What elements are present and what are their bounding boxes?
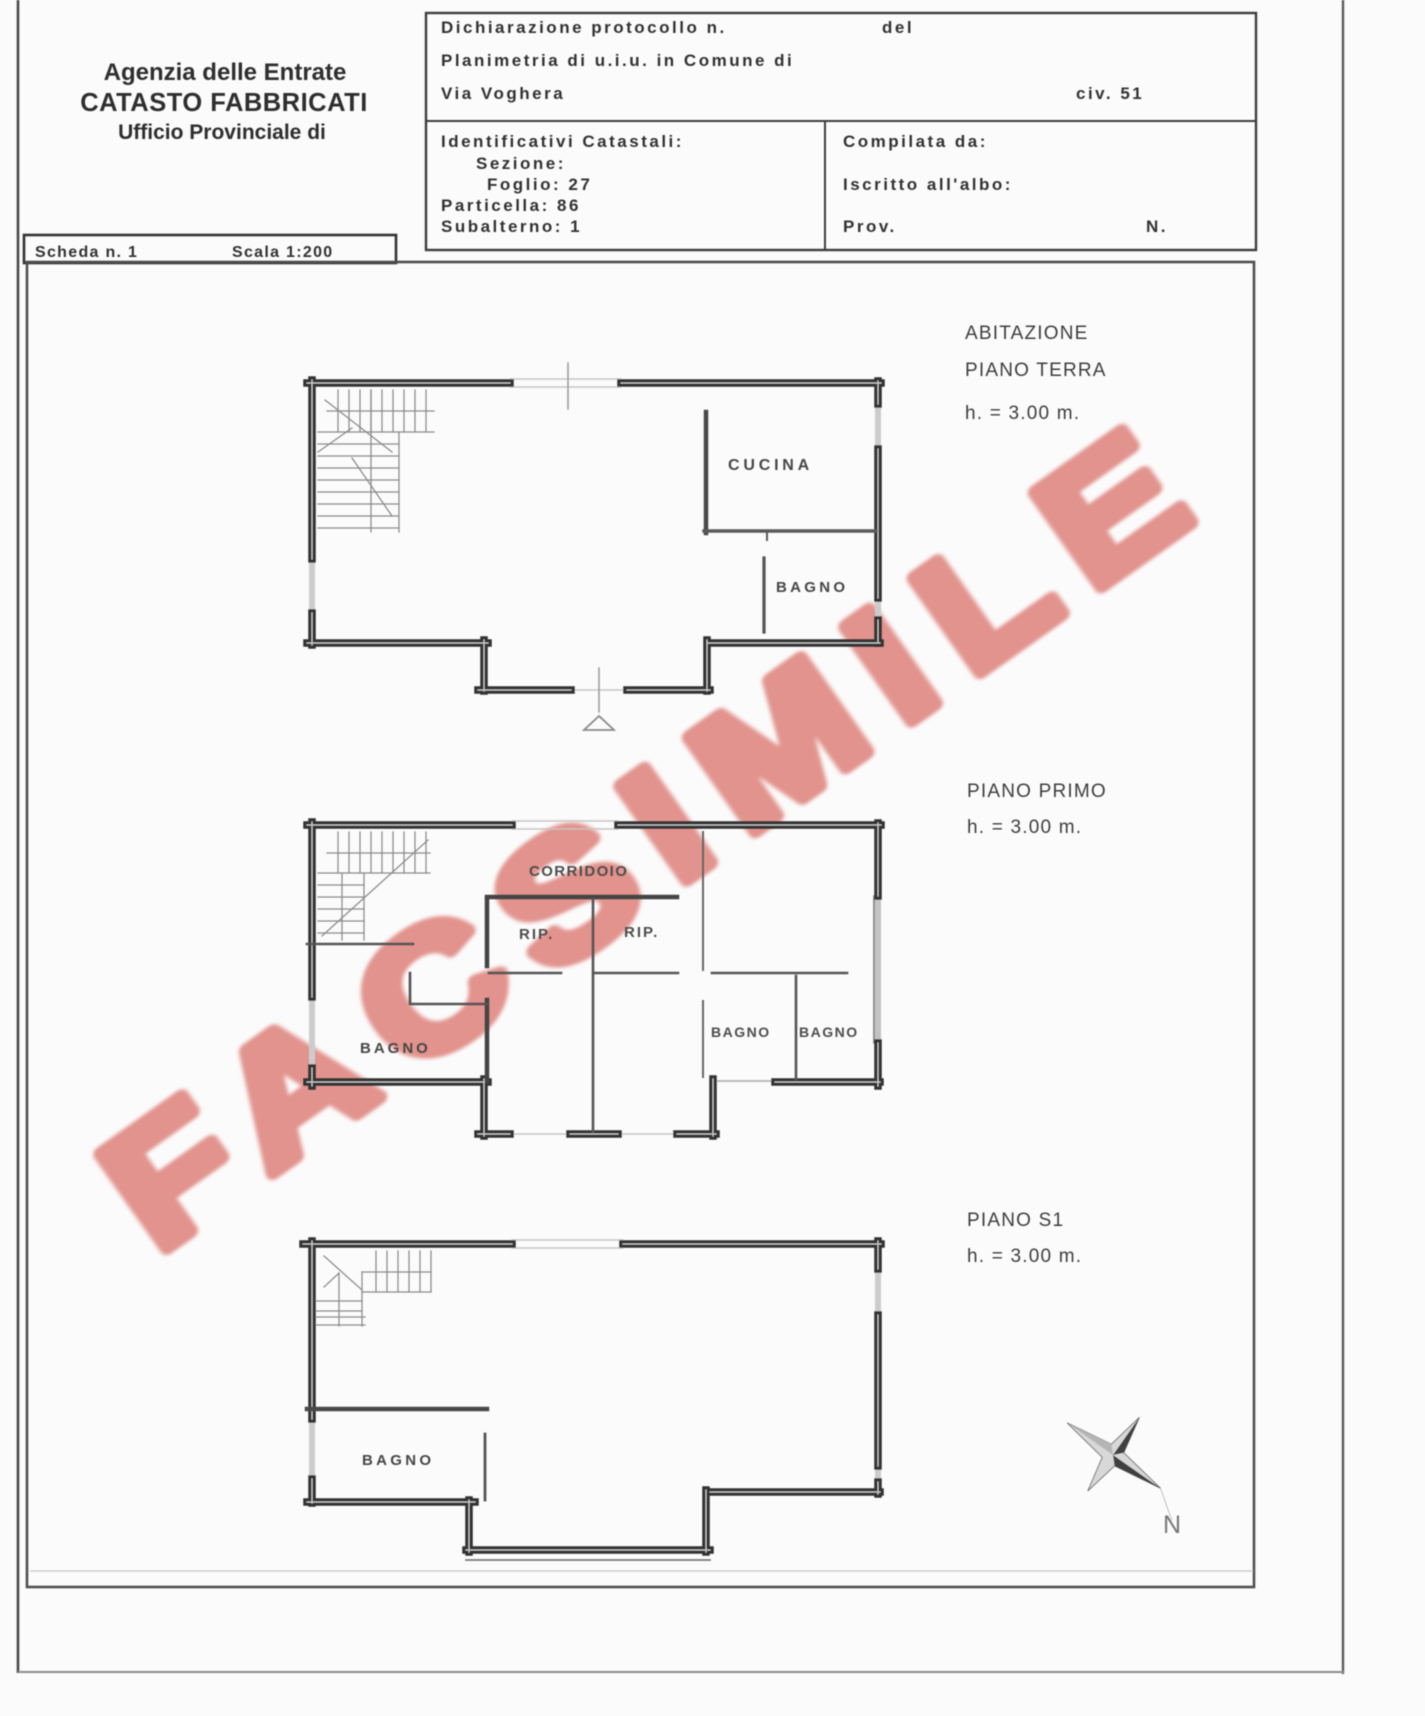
svg-text:h. = 3.00 m.: h. = 3.00 m.: [965, 403, 1080, 424]
svg-text:Sezione:: Sezione:: [476, 154, 566, 173]
svg-text:N: N: [1163, 1511, 1181, 1539]
svg-text:Planimetria di u.i.u. in Comun: Planimetria di u.i.u. in Comune di: [441, 51, 794, 70]
svg-text:civ. 51: civ. 51: [1076, 84, 1144, 103]
svg-text:PIANO S1: PIANO S1: [967, 1210, 1064, 1231]
svg-text:RIP.: RIP.: [624, 924, 659, 941]
svg-text:CUCINA: CUCINA: [728, 457, 813, 474]
svg-text:Via Voghera: Via Voghera: [441, 84, 565, 103]
svg-text:PIANO TERRA: PIANO TERRA: [965, 360, 1107, 381]
svg-text:Compilata da:: Compilata da:: [843, 132, 988, 151]
svg-text:Prov.: Prov.: [843, 217, 897, 236]
svg-text:Particella: 86: Particella: 86: [441, 196, 581, 215]
svg-text:h. = 3.00 m.: h. = 3.00 m.: [967, 1246, 1082, 1267]
svg-text:Identificativi Catastali:: Identificativi Catastali:: [441, 132, 684, 151]
svg-text:BAGNO: BAGNO: [360, 1040, 431, 1057]
svg-text:Iscritto all'albo:: Iscritto all'albo:: [843, 175, 1013, 194]
svg-text:N.: N.: [1146, 217, 1168, 236]
svg-text:CATASTO FABBRICATI: CATASTO FABBRICATI: [80, 89, 368, 117]
svg-text:Ufficio Provinciale di: Ufficio Provinciale di: [118, 121, 326, 144]
svg-text:Scheda n. 1: Scheda n. 1: [35, 244, 138, 261]
svg-text:RIP.: RIP.: [519, 926, 554, 943]
svg-text:PIANO PRIMO: PIANO PRIMO: [967, 781, 1107, 802]
svg-text:Scala 1:200: Scala 1:200: [232, 244, 333, 261]
svg-text:del: del: [882, 18, 914, 37]
svg-text:Agenzia delle Entrate: Agenzia delle Entrate: [104, 59, 347, 86]
svg-text:BAGNO: BAGNO: [776, 579, 848, 596]
svg-text:BAGNO: BAGNO: [799, 1024, 859, 1040]
svg-text:BAGNO: BAGNO: [362, 1452, 434, 1469]
svg-text:Subalterno: 1: Subalterno: 1: [441, 217, 582, 236]
svg-text:CORRIDOIO: CORRIDOIO: [529, 863, 628, 880]
svg-text:ABITAZIONE: ABITAZIONE: [965, 323, 1089, 344]
svg-text:Dichiarazione protocollo n.: Dichiarazione protocollo n.: [441, 18, 727, 37]
svg-text:BAGNO: BAGNO: [711, 1024, 771, 1040]
svg-text:Foglio: 27: Foglio: 27: [487, 175, 592, 194]
svg-text:h. = 3.00 m.: h. = 3.00 m.: [967, 817, 1082, 838]
